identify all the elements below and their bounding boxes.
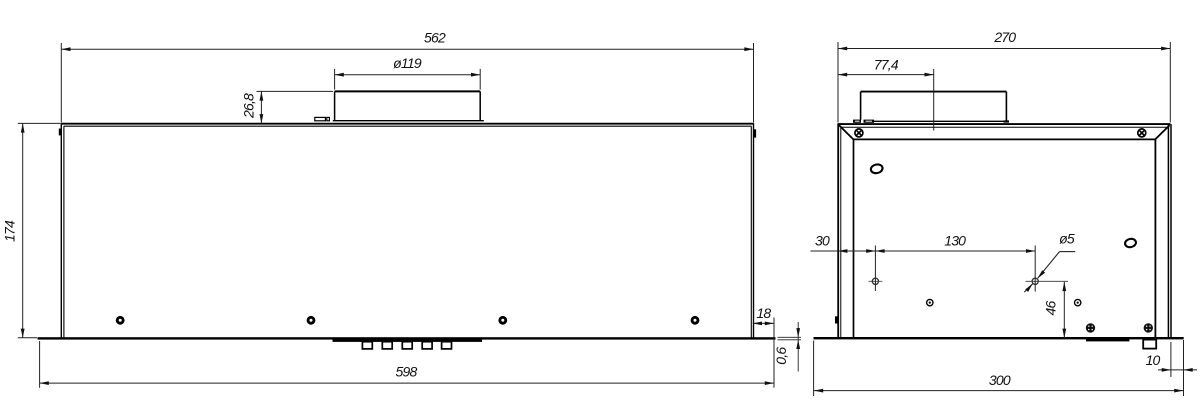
- svg-text:174: 174: [1, 220, 17, 242]
- svg-text:10: 10: [1146, 352, 1161, 368]
- svg-text:46: 46: [1043, 301, 1059, 316]
- svg-text:130: 130: [944, 233, 966, 249]
- svg-text:562: 562: [424, 30, 446, 46]
- svg-text:598: 598: [396, 363, 418, 379]
- svg-text:30: 30: [815, 233, 830, 249]
- svg-text:300: 300: [989, 372, 1011, 388]
- svg-text:ø119: ø119: [393, 55, 422, 71]
- svg-text:77,4: 77,4: [874, 57, 899, 73]
- svg-text:26,8: 26,8: [241, 93, 257, 119]
- svg-text:ø5: ø5: [1059, 231, 1075, 247]
- svg-text:0,6: 0,6: [773, 347, 789, 365]
- svg-text:18: 18: [756, 305, 771, 321]
- svg-text:270: 270: [993, 29, 1016, 45]
